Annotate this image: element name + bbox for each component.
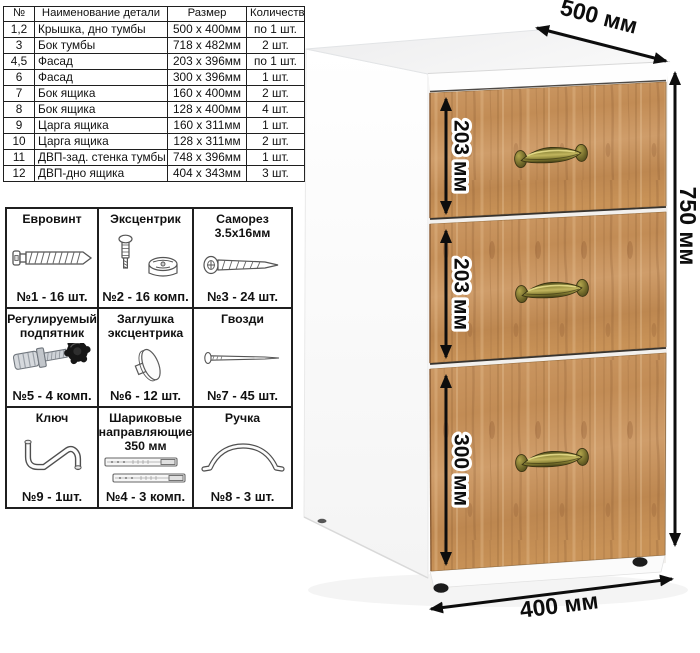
table-row: 8 Бок ящика 128 х 400мм 4 шт. (4, 101, 305, 117)
small-screw-icon (196, 241, 289, 290)
parts-table-header-row: № Наименование детали Размер Количество (4, 7, 305, 22)
part-no: 1,2 (4, 21, 35, 37)
part-no: 11 (4, 149, 35, 165)
part-name: Бок тумбы (35, 37, 168, 53)
part-name: Крышка, дно тумбы (35, 21, 168, 37)
dimension-label-drawer-middle: 203 мм (450, 258, 473, 330)
hardware-grid: Евровинт №1 - 16 шт. (5, 207, 293, 509)
hardware-count: №7 - 45 шт. (207, 389, 278, 402)
eccentric-cam-icon (101, 227, 190, 290)
assembly-instruction-page: { "parts_table": { "headers": { "no": "№… (0, 0, 700, 648)
part-size: 160 х 400мм (168, 85, 247, 101)
hardware-count: №2 - 16 комп. (102, 290, 189, 303)
cabinet-side-panel (304, 49, 428, 578)
dimension-label-height: 750 мм (675, 187, 700, 266)
part-size: 300 х 396мм (168, 69, 247, 85)
cam-cap-icon (101, 341, 190, 389)
part-no: 10 (4, 133, 35, 149)
table-row: 9 Царга ящика 160 х 311мм 1 шт. (4, 117, 305, 133)
adjustable-foot-icon (9, 341, 95, 389)
hardware-count: №1 - 16 шт. (16, 290, 87, 303)
part-name: ДВП-дно ящика (35, 165, 168, 181)
part-size: 203 х 396мм (168, 53, 247, 69)
dimension-label-drawer-top: 203 мм (450, 120, 473, 192)
part-size: 500 х 400мм (168, 21, 247, 37)
hardware-title: Заглушка эксцентрика (101, 313, 190, 341)
part-size: 748 х 396мм (168, 149, 247, 165)
dimension-label-depth: 500 мм (558, 0, 641, 39)
part-name: Царга ящика (35, 133, 168, 149)
table-row: 4,5 Фасад 203 х 396мм по 1 шт. (4, 53, 305, 69)
part-no: 9 (4, 117, 35, 133)
table-row: 12 ДВП-дно ящика 404 х 343мм 3 шт. (4, 165, 305, 181)
parts-table: № Наименование детали Размер Количество … (3, 6, 305, 182)
hardware-title: Саморез 3.5х16мм (196, 213, 289, 241)
table-row: 7 Бок ящика 160 х 400мм 2 шт. (4, 85, 305, 101)
hardware-count: №5 - 4 комп. (12, 389, 91, 402)
part-no: 7 (4, 85, 35, 101)
part-no: 4,5 (4, 53, 35, 69)
cabinet-foot-front-left (434, 583, 449, 593)
hardware-cell-euro-screw: Евровинт №1 - 16 шт. (7, 209, 99, 309)
part-size: 128 х 400мм (168, 101, 247, 117)
hex-key-icon (9, 426, 95, 490)
part-name: Фасад (35, 69, 168, 85)
header-no: № (4, 7, 35, 22)
hardware-title: Эксцентрик (110, 213, 181, 227)
part-no: 6 (4, 69, 35, 85)
part-size: 128 х 311мм (168, 133, 247, 149)
hardware-cell-adjustable-foot: Регулируемый подпятник (7, 309, 99, 408)
header-size: Размер (168, 7, 247, 22)
part-size: 160 х 311мм (168, 117, 247, 133)
hardware-title: Регулируемый подпятник (7, 313, 97, 341)
table-row: 10 Царга ящика 128 х 311мм 2 шт. (4, 133, 305, 149)
hardware-cell-pull-handle: Ручка №8 - 3 шт. (194, 408, 291, 507)
part-size: 718 х 482мм (168, 37, 247, 53)
part-name: Царга ящика (35, 117, 168, 133)
euro-screw-icon (9, 227, 95, 290)
table-row: 11 ДВП-зад. стенка тумбы 748 х 396мм 1 ш… (4, 149, 305, 165)
cabinet-foot-front-right (633, 557, 648, 567)
hardware-cell-nails: Гвозди №7 - 45 шт. (194, 309, 291, 408)
table-row: 3 Бок тумбы 718 х 482мм 2 шт. (4, 37, 305, 53)
hardware-cell-ball-slides: Шариковые направляющие 350 мм (99, 408, 194, 507)
hardware-cell-key: Ключ №9 - 1шт. (7, 408, 99, 507)
hardware-count: №3 - 24 шт. (207, 290, 278, 303)
part-name: ДВП-зад. стенка тумбы (35, 149, 168, 165)
table-row: 1,2 Крышка, дно тумбы 500 х 400мм по 1 ш… (4, 21, 305, 37)
part-no: 8 (4, 101, 35, 117)
hardware-count: №9 - 1шт. (22, 490, 82, 503)
hardware-title: Гвозди (221, 313, 264, 327)
hardware-count: №4 - 3 комп. (106, 490, 185, 503)
pull-handle-icon (196, 426, 289, 490)
nail-icon (196, 327, 289, 389)
hardware-count: №8 - 3 шт. (211, 490, 275, 503)
part-name: Бок ящика (35, 101, 168, 117)
cabinet-illustration: 500 мм 750 мм 400 мм 203 мм 203 мм 300 м… (295, 0, 700, 648)
part-no: 12 (4, 165, 35, 181)
hardware-cell-cam-cap: Заглушка эксцентрика №6 - 12 шт. (99, 309, 194, 408)
hardware-cell-eccentric: Эксцентрик №2 - 16 комп. (99, 209, 194, 309)
cabinet-svg: 500 мм 750 мм 400 мм 203 мм 203 мм 300 м… (295, 0, 700, 648)
hardware-count: №6 - 12 шт. (110, 389, 181, 402)
hardware-title: Ручка (225, 412, 260, 426)
hardware-title: Евровинт (22, 213, 81, 227)
dimension-label-drawer-bottom: 300 мм (450, 434, 473, 506)
cabinet-foot-rear-left (318, 519, 327, 523)
ball-slides-icon (101, 453, 190, 490)
hardware-title: Ключ (36, 412, 69, 426)
table-row: 6 Фасад 300 х 396мм 1 шт. (4, 69, 305, 85)
header-name: Наименование детали (35, 7, 168, 22)
hardware-title: Шариковые направляющие 350 мм (99, 412, 193, 453)
part-name: Бок ящика (35, 85, 168, 101)
hardware-cell-small-screw: Саморез 3.5х16мм №3 - 24 шт. (194, 209, 291, 309)
part-size: 404 х 343мм (168, 165, 247, 181)
part-no: 3 (4, 37, 35, 53)
part-name: Фасад (35, 53, 168, 69)
